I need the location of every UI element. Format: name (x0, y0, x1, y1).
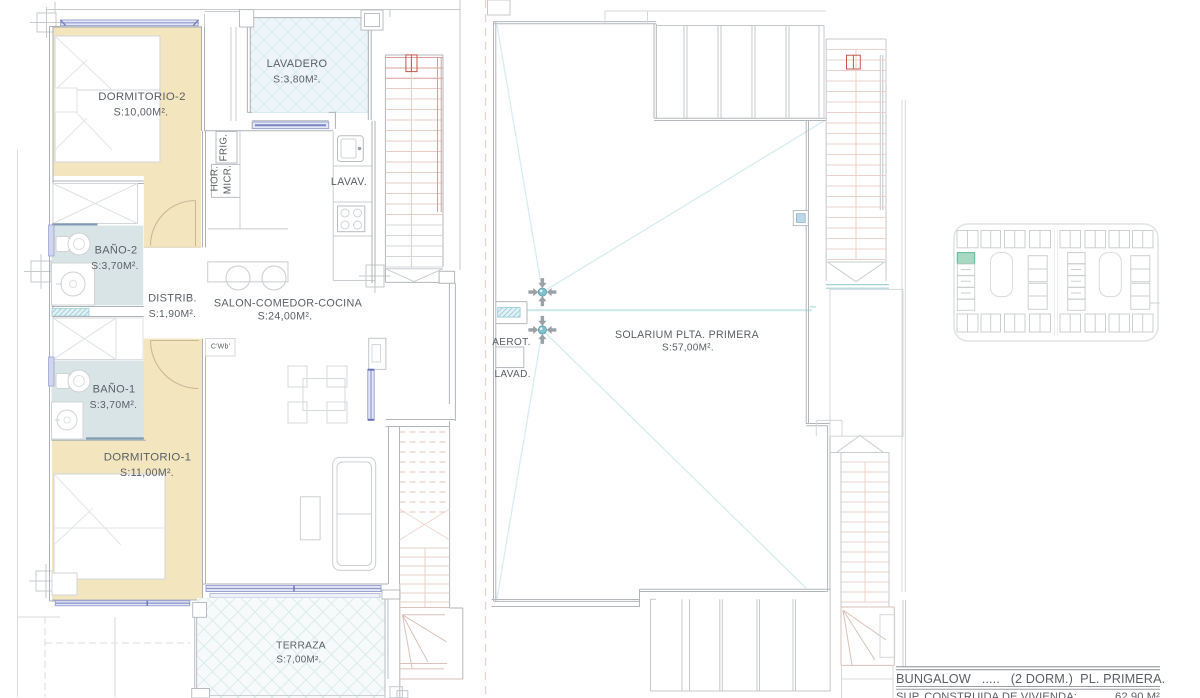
svg-text:LAVAV.: LAVAV. (331, 176, 367, 188)
svg-text:SALON-COMEDOR-COCINA: SALON-COMEDOR-COCINA (214, 298, 363, 310)
svg-text:S:57,00M².: S:57,00M². (662, 343, 714, 354)
svg-text:SOLARIUM PLTA. PRIMERA: SOLARIUM PLTA. PRIMERA (615, 329, 760, 341)
svg-text:DORMITORIO-1: DORMITORIO-1 (104, 452, 192, 464)
svg-text:S:3,70M².: S:3,70M². (91, 261, 139, 272)
svg-text:S:7,00M².: S:7,00M². (276, 655, 321, 666)
svg-text:62,90 M²: 62,90 M² (1115, 691, 1160, 698)
svg-text:TERRAZA: TERRAZA (276, 641, 326, 652)
svg-text:C'Wb': C'Wb' (211, 344, 230, 351)
svg-text:S:10,00M².: S:10,00M². (114, 107, 169, 119)
svg-text:BUNGALOW ..... (2 DORM.): BUNGALOW ..... (2 DORM.) PL. PRIMERA. (896, 672, 1165, 686)
svg-text:S:3,80M².: S:3,80M². (273, 75, 321, 86)
svg-text:FRIG.: FRIG. (219, 134, 230, 162)
svg-text:DISTRIB.: DISTRIB. (148, 293, 197, 305)
svg-text:SUP. CONSTRUIDA DE VIVIENDA:: SUP. CONSTRUIDA DE VIVIENDA: (896, 691, 1077, 698)
svg-text:LAVAD.: LAVAD. (494, 369, 531, 380)
svg-text:DORMITORIO-2: DORMITORIO-2 (98, 91, 186, 103)
svg-text:S:24,00M².: S:24,00M². (258, 311, 313, 323)
svg-text:S:11,00M².: S:11,00M². (120, 467, 174, 479)
svg-text:MICR.: MICR. (223, 165, 234, 194)
svg-text:S:1,90M².: S:1,90M². (149, 309, 197, 320)
svg-text:S:3,70M².: S:3,70M². (90, 400, 138, 411)
svg-text:BAÑO-2: BAÑO-2 (95, 244, 138, 257)
svg-text:BAÑO-1: BAÑO-1 (93, 383, 136, 396)
svg-text:HOR.: HOR. (210, 166, 221, 192)
svg-text:LAVADERO: LAVADERO (267, 58, 328, 70)
svg-text:AEROT.: AEROT. (492, 337, 531, 348)
